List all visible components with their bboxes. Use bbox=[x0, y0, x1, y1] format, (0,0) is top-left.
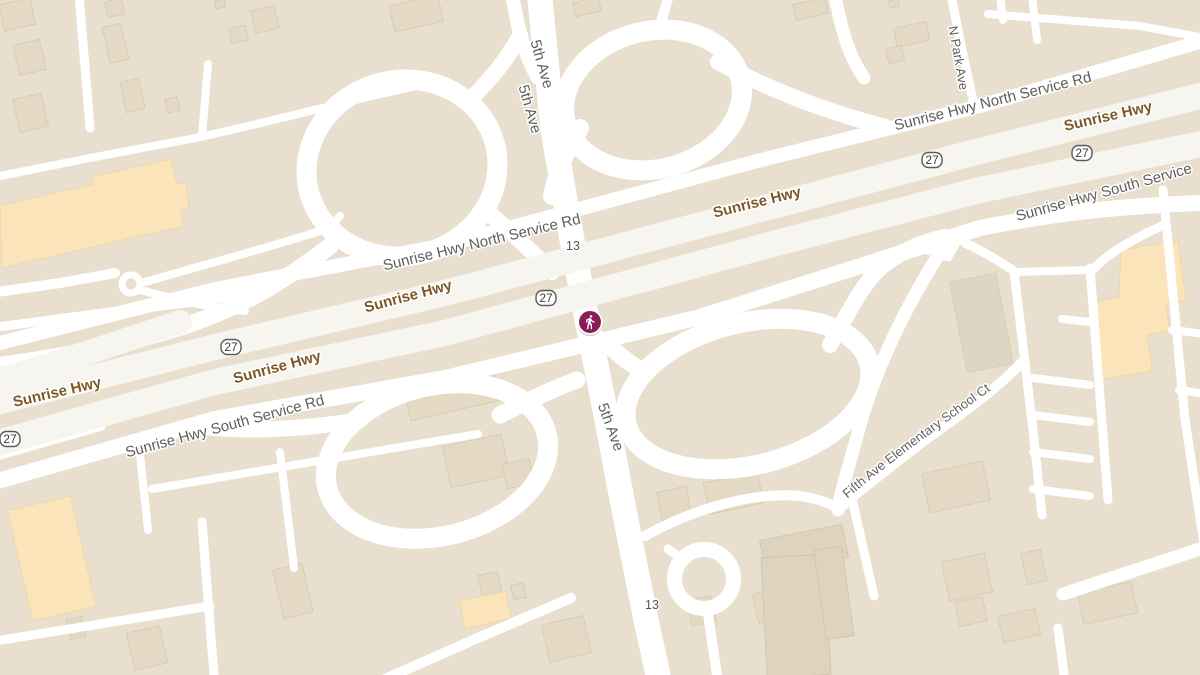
svg-text:13: 13 bbox=[566, 239, 580, 253]
svg-text:27: 27 bbox=[1075, 146, 1089, 160]
svg-text:27: 27 bbox=[925, 153, 939, 167]
svg-text:13: 13 bbox=[645, 598, 659, 612]
svg-text:27: 27 bbox=[539, 291, 553, 305]
svg-text:27: 27 bbox=[224, 340, 238, 354]
svg-text:27: 27 bbox=[3, 432, 17, 446]
